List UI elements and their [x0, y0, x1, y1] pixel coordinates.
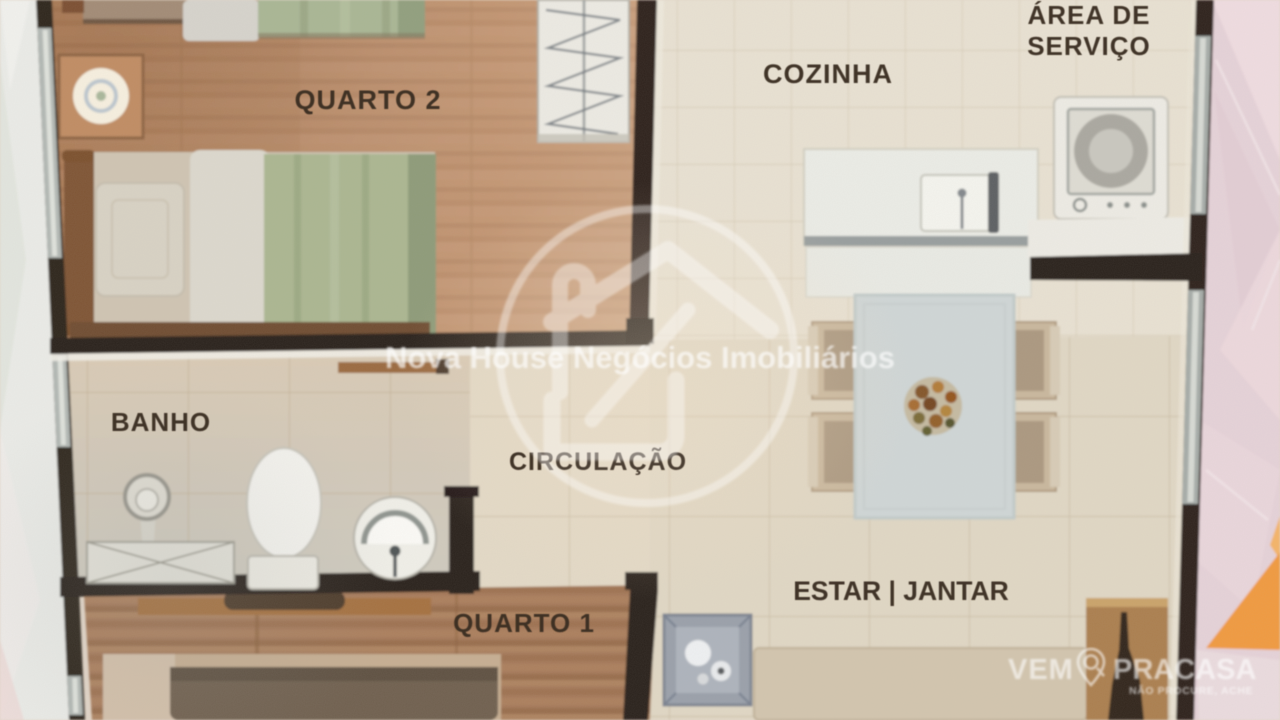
svg-text:SERVIÇO: SERVIÇO [1027, 31, 1151, 61]
svg-text:QUARTO 2: QUARTO 2 [294, 85, 441, 115]
svg-text:NÃO PROCURE, ACHE: NÃO PROCURE, ACHE [1129, 684, 1253, 697]
svg-text:ÁREA DE: ÁREA DE [1027, 0, 1150, 30]
svg-text:Nova House Negócios Imobiliári: Nova House Negócios Imobiliários [385, 340, 895, 375]
svg-text:BANHO: BANHO [111, 407, 211, 437]
svg-text:VEM: VEM [1008, 654, 1074, 686]
svg-text:PRACASA: PRACASA [1113, 654, 1256, 686]
svg-text:ESTAR | JANTAR: ESTAR | JANTAR [793, 576, 1009, 606]
svg-text:QUARTO 1: QUARTO 1 [453, 608, 595, 638]
svg-text:COZINHA: COZINHA [763, 59, 893, 89]
